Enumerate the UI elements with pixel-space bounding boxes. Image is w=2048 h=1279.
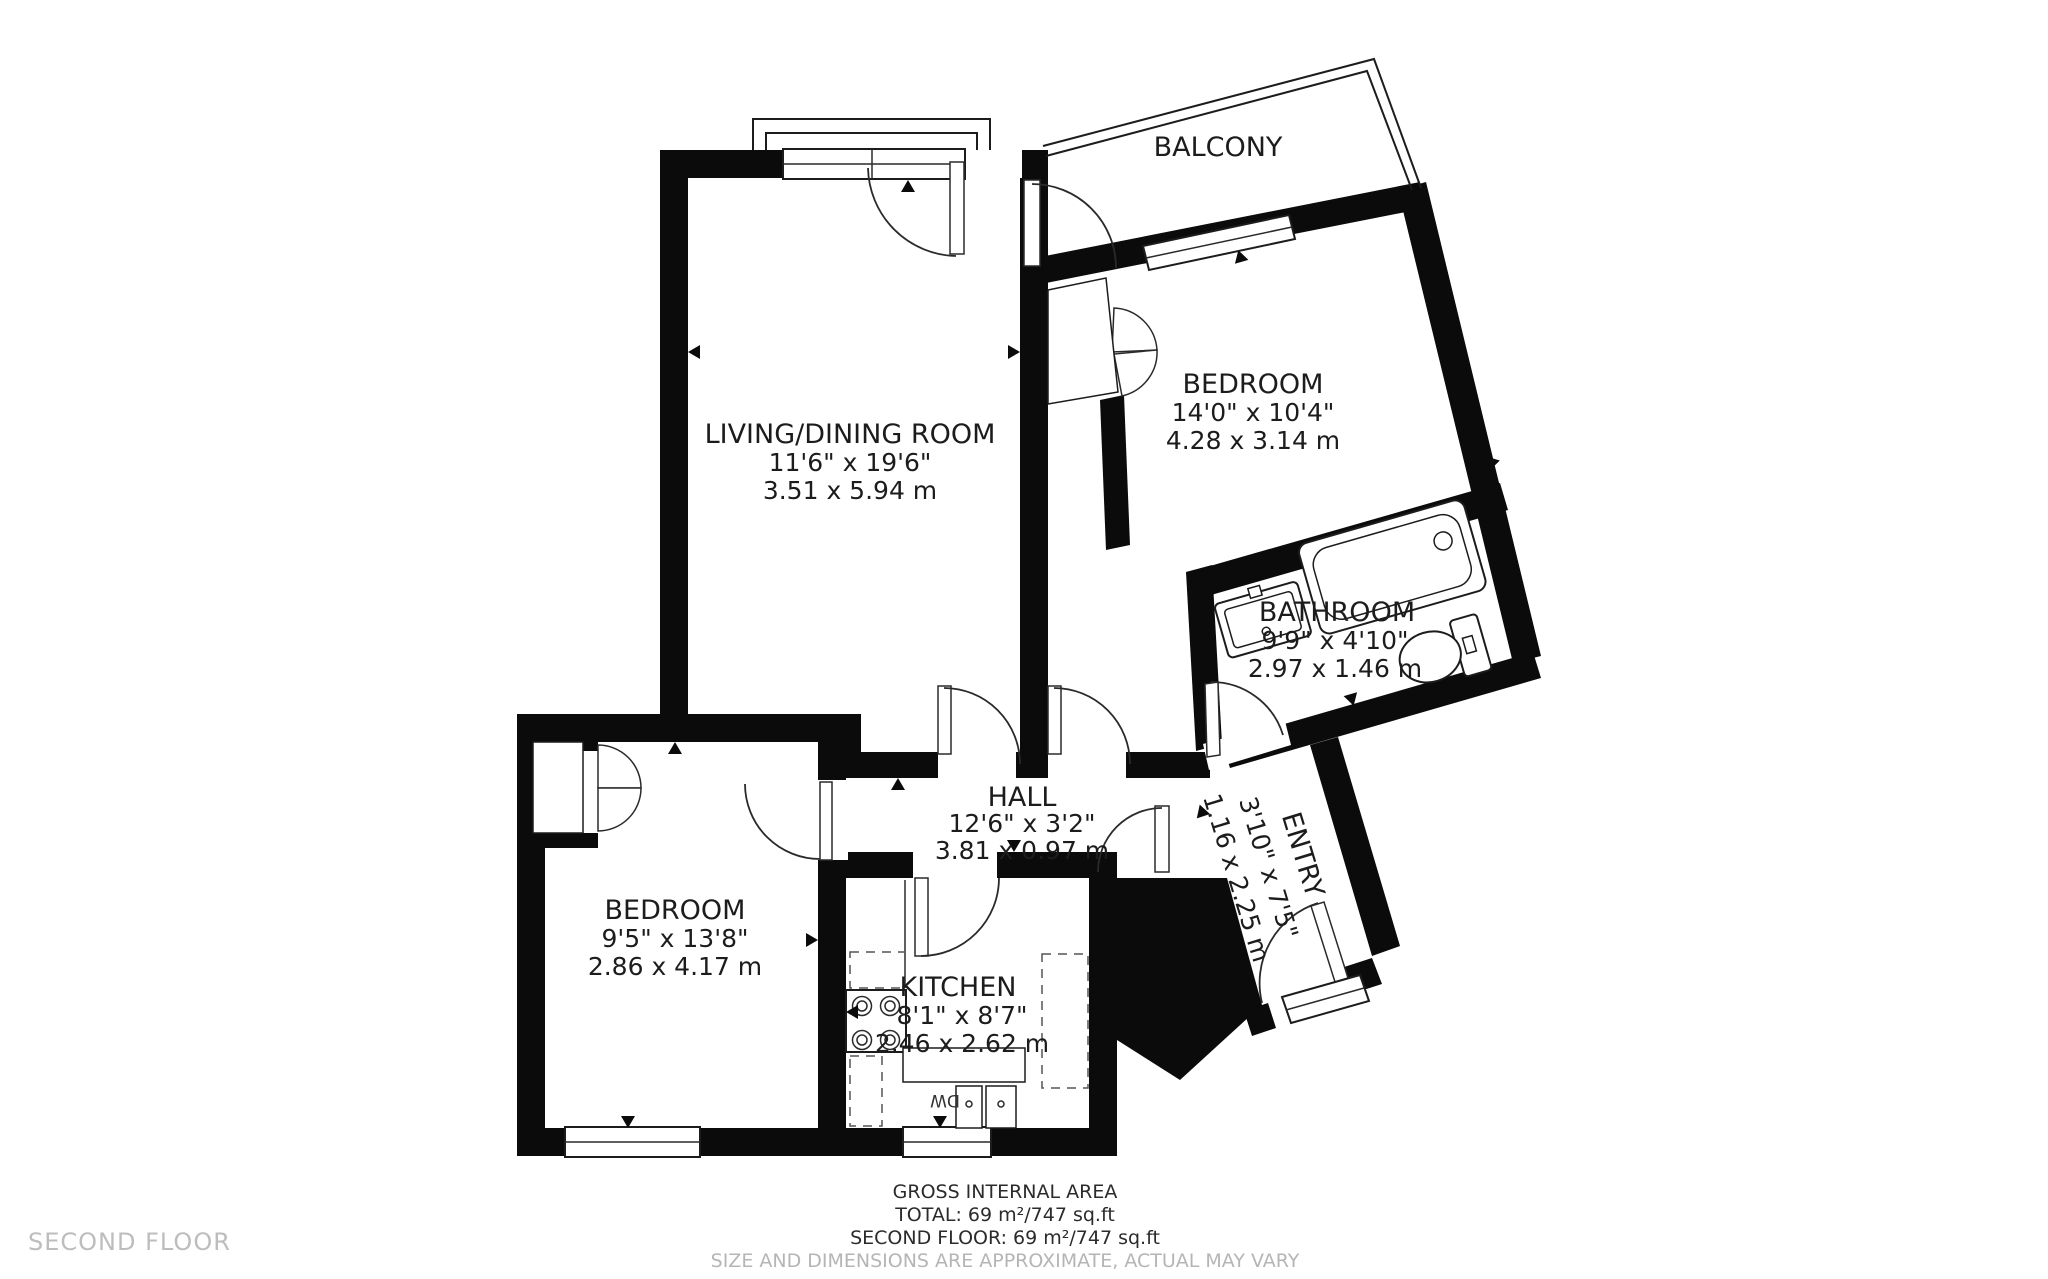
- bathroom-metric: 2.97 x 1.46 m: [1248, 654, 1422, 683]
- balcony-railing: [1043, 59, 1421, 190]
- hall-imperial: 12'6" x 3'2": [949, 809, 1096, 838]
- footer: GROSS INTERNAL AREA TOTAL: 69 m²/747 sq.…: [28, 1181, 1300, 1272]
- bedroom-right-imperial: 14'0" x 10'4": [1172, 398, 1335, 427]
- footer-disclaimer: SIZE AND DIMENSIONS ARE APPROXIMATE, ACT…: [711, 1250, 1300, 1272]
- footer-total: TOTAL: 69 m²/747 sq.ft: [894, 1204, 1115, 1226]
- footer-gross-area: GROSS INTERNAL AREA: [893, 1181, 1118, 1203]
- bedroom-right-label: BEDROOM: [1183, 369, 1324, 400]
- bathroom-imperial: 9'9" x 4'10": [1262, 626, 1409, 655]
- hall-metric: 3.81 x 0.97 m: [935, 836, 1109, 865]
- bedroom-left-closet-doors: [598, 745, 641, 831]
- dishwasher-label: DW: [930, 1090, 960, 1110]
- floorplan-canvas: DW LIVING/DINING ROOM 11'6" x 19'6" 3.51…: [0, 0, 2048, 1279]
- floor-name-label: SECOND FLOOR: [28, 1228, 231, 1256]
- balcony-label: BALCONY: [1154, 132, 1283, 163]
- bedroom-left-metric: 2.86 x 4.17 m: [588, 952, 762, 981]
- footer-floor-area: SECOND FLOOR: 69 m²/747 sq.ft: [850, 1227, 1160, 1249]
- floorplan-page: DW LIVING/DINING ROOM 11'6" x 19'6" 3.51…: [0, 0, 2048, 1279]
- living-room-label: LIVING/DINING ROOM: [705, 419, 996, 450]
- kitchen-imperial: 8'1" x 8'7": [896, 1001, 1027, 1030]
- bedroom-left-label: BEDROOM: [605, 895, 746, 926]
- living-room-metric: 3.51 x 5.94 m: [763, 476, 937, 505]
- kitchen-sink: [956, 1086, 1016, 1128]
- bedroom-left-imperial: 9'5" x 13'8": [602, 924, 749, 953]
- kitchen-label: KITCHEN: [900, 972, 1017, 1003]
- bedroom-right-closet-doors: [1112, 308, 1157, 396]
- living-room-imperial: 11'6" x 19'6": [769, 448, 932, 477]
- kitchen-metric: 2.46 x 2.62 m: [875, 1029, 1049, 1058]
- bedroom-right-metric: 4.28 x 3.14 m: [1166, 426, 1340, 455]
- kitchen-door: [915, 878, 999, 956]
- bathroom-label: BATHROOM: [1259, 597, 1415, 628]
- bedroom-left-closet: [533, 742, 583, 833]
- bay-window-outline: [753, 119, 990, 150]
- bedroom-right-closet: [1048, 278, 1118, 404]
